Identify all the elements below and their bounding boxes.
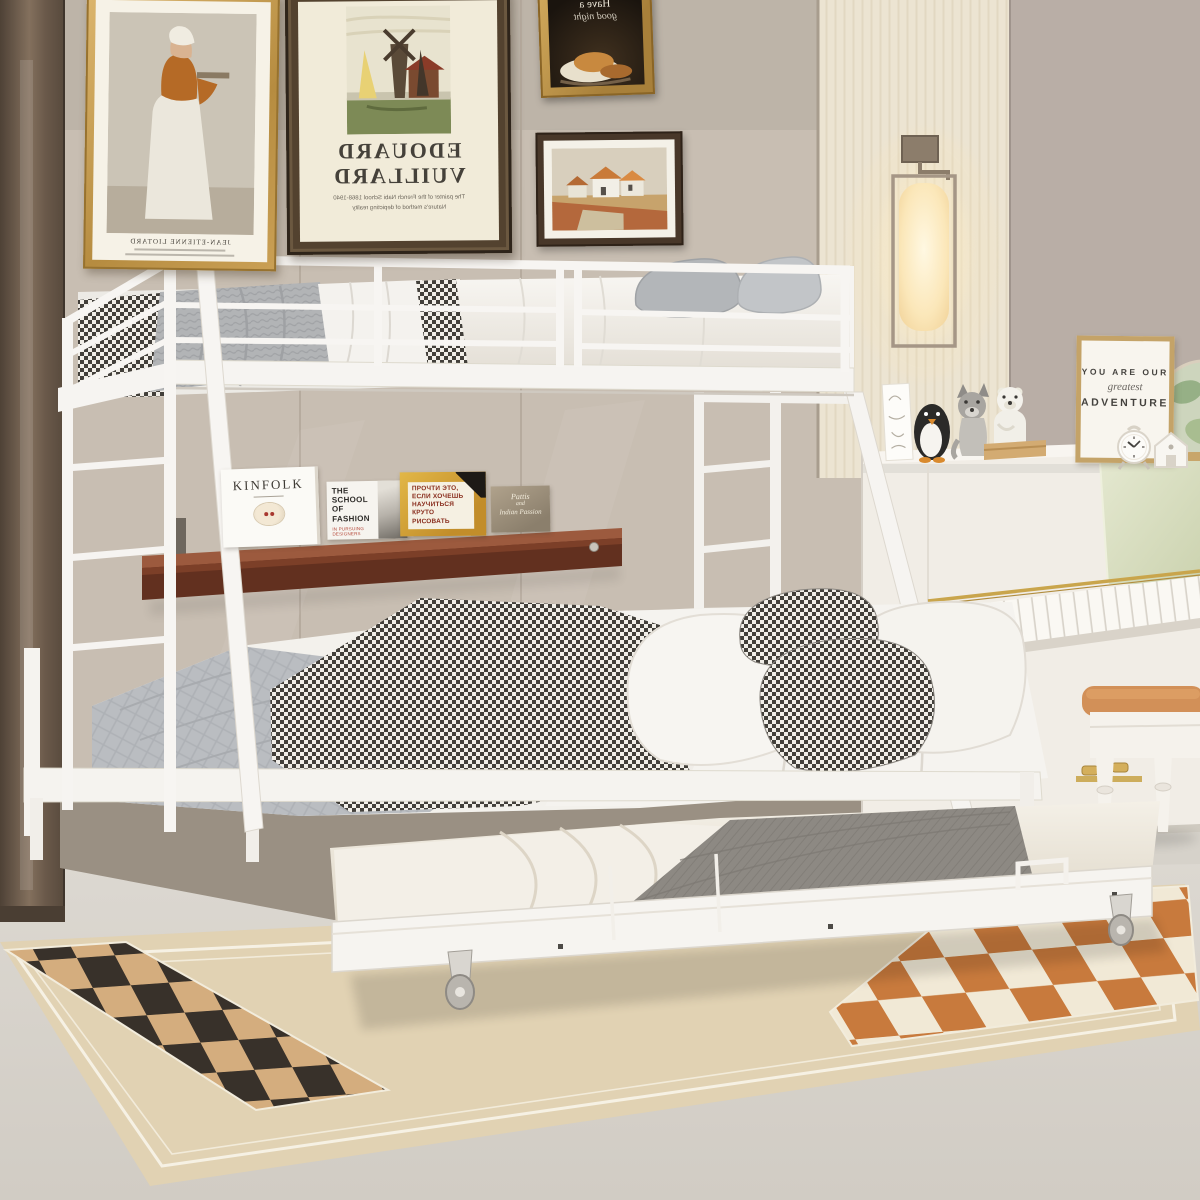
animal-figurines xyxy=(882,383,1046,463)
framed-still-life: Have a good night xyxy=(537,0,655,98)
book-kinfolk: KINFOLK xyxy=(221,466,321,547)
poster-caption: The painter of the French Nabi School 18… xyxy=(300,192,499,214)
landscape-painting xyxy=(552,147,668,230)
book-fashion-title-line1: THE SCHOOL xyxy=(332,486,379,505)
sign-line3: ADVENTURE xyxy=(1081,397,1169,410)
book-fashion-title-line2: OF FASHION xyxy=(332,504,379,523)
book-rule xyxy=(254,496,284,498)
windmill-painting xyxy=(345,6,450,135)
poster-title-line1: EDOUARD xyxy=(299,138,498,164)
book-fashion-text: THE SCHOOL OF FASHION IN PURSUING DESIGN… xyxy=(326,481,378,540)
book-russian-line4: КРУТО РИСОВАТЬ xyxy=(412,509,470,526)
sign-line1: YOU ARE OUR xyxy=(1081,367,1169,378)
portrait-subcaption-line xyxy=(125,253,234,257)
book-cover-plate xyxy=(254,503,285,526)
still-life-picture: Have a good night xyxy=(547,0,644,88)
framed-landscape xyxy=(535,131,683,247)
book-fashion-subtitle: IN PURSUING DESIGNERS xyxy=(332,526,379,537)
portrait-subcaption-line xyxy=(134,248,225,251)
still-life-line2: good night xyxy=(548,9,642,24)
book-school-of-fashion: THE SCHOOL OF FASHION IN PURSUING DESIGN… xyxy=(326,480,407,539)
poster-title: EDOUARD VUILLARD xyxy=(299,138,498,189)
caster-wheel-left xyxy=(446,950,474,1009)
house-figurine xyxy=(1151,430,1191,468)
book-script-line3: Indian Passion xyxy=(491,508,550,517)
book-behind-spine xyxy=(456,472,486,498)
portrait-caption: JEAN-ETIENNE LIOTARD xyxy=(129,237,230,246)
poster-caption-line2: Nature's method of depicting reality xyxy=(300,203,499,215)
landscape-mat xyxy=(543,139,675,238)
bedroom-photo: JEAN-ETIENNE LIOTARD EDOUARD VUILLARD Th… xyxy=(0,0,1200,1200)
book-kinfolk-title: KINFOLK xyxy=(221,475,316,494)
poster-paper: EDOUARD VUILLARD The painter of the Fren… xyxy=(298,0,499,242)
book-russian-drawing: ПРОЧТИ ЭТО, ЕСЛИ ХОЧЕШЬ НАУЧИТЬСЯ КРУТО … xyxy=(400,472,487,537)
caster-wheel-right xyxy=(1109,894,1133,945)
framed-portrait-print: JEAN-ETIENNE LIOTARD xyxy=(83,0,280,271)
still-life-text: Have a good night xyxy=(548,0,643,24)
portrait-picture xyxy=(107,12,257,235)
book-script-cover: Pattis and Indian Passion xyxy=(491,485,551,532)
poster-title-line2: VUILLARD xyxy=(299,163,498,189)
sign-line2: greatest xyxy=(1081,381,1169,394)
portrait-mat: JEAN-ETIENNE LIOTARD xyxy=(92,0,271,262)
framed-windmill-poster: EDOUARD VUILLARD The painter of the Fren… xyxy=(285,0,512,255)
sketch-card xyxy=(882,383,913,460)
